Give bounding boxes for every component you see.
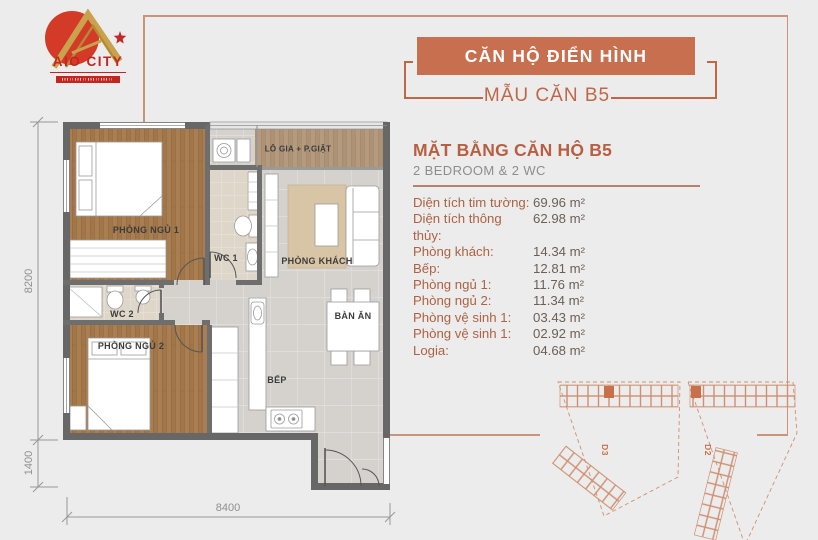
spec-value: 02.92 m² bbox=[533, 326, 585, 342]
bed1 bbox=[76, 142, 162, 216]
stove-icon bbox=[271, 410, 302, 428]
toilet-icon-wc1 bbox=[235, 215, 260, 237]
dimension-left-lower: 1400 bbox=[23, 451, 35, 475]
spec-value: 12.81 m² bbox=[533, 261, 585, 277]
spec-label: Phòng ngủ 2: bbox=[413, 293, 533, 309]
room-label-wc2: WC 2 bbox=[110, 309, 134, 319]
room-label-loggia: LÔ GIA + P.GIẶT bbox=[265, 145, 332, 154]
siteplan-drawing bbox=[552, 382, 797, 540]
spec-value: 69.96 m² bbox=[533, 195, 585, 211]
logo-underline bbox=[50, 72, 126, 74]
room-label-dining: BÀN ĂN bbox=[335, 311, 372, 321]
highlight-unit-d3 bbox=[604, 386, 614, 398]
room-label-bedroom2: PHÒNG NGỦ 2 bbox=[98, 341, 164, 351]
star-icon bbox=[114, 31, 126, 44]
spec-row: Phòng khách:14.34 m² bbox=[413, 244, 705, 260]
spec-row: Bếp:12.81 m² bbox=[413, 261, 705, 277]
sofa bbox=[346, 186, 379, 266]
spec-label: Phòng vệ sinh 1: bbox=[413, 326, 533, 342]
spec-label: Diện tích thông thủy: bbox=[413, 211, 533, 244]
dimension-left-upper: 8200 bbox=[23, 269, 35, 293]
floorplan-drawing bbox=[63, 122, 390, 490]
logo-tagline-bar bbox=[56, 76, 120, 83]
spec-value: 62.98 m² bbox=[533, 211, 585, 244]
spec-list: Diện tích tim tường:69.96 m²Diện tích th… bbox=[413, 195, 705, 359]
loggia-slider bbox=[262, 167, 383, 170]
info-panel: MẶT BẰNG CĂN HỘ B5 2 BEDROOM & 2 WC Diện… bbox=[413, 140, 705, 359]
banner-title: CĂN HỘ ĐIỂN HÌNH bbox=[465, 46, 648, 67]
spec-row: Phòng vệ sinh 1:03.43 m² bbox=[413, 310, 705, 326]
spec-label: Bếp: bbox=[413, 261, 533, 277]
tv-console bbox=[265, 174, 278, 277]
room-label-wc1: WC 1 bbox=[214, 253, 238, 263]
washer-icon bbox=[213, 139, 250, 162]
spec-row: Logia:04.68 m² bbox=[413, 343, 705, 359]
spec-label: Diện tích tim tường: bbox=[413, 195, 533, 211]
dimension-bottom: 8400 bbox=[216, 502, 240, 514]
spec-value: 04.68 m² bbox=[533, 343, 585, 359]
spec-row: Phòng ngủ 2:11.34 m² bbox=[413, 293, 705, 309]
spec-row: Diện tích tim tường:69.96 m² bbox=[413, 195, 705, 211]
spec-label: Phòng ngủ 1: bbox=[413, 277, 533, 293]
room-label-living: PHÒNG KHÁCH bbox=[281, 256, 352, 266]
banner: CĂN HỘ ĐIỂN HÌNH bbox=[417, 37, 695, 75]
spec-label: Logia: bbox=[413, 343, 533, 359]
coffee-table bbox=[315, 204, 338, 246]
info-subtitle: 2 BEDROOM & 2 WC bbox=[413, 163, 705, 178]
spec-row: Diện tích thông thủy:62.98 m² bbox=[413, 211, 705, 244]
spec-value: 03.43 m² bbox=[533, 310, 585, 326]
wardrobe1 bbox=[70, 240, 166, 278]
logo-wordmark: AIO CITY bbox=[50, 54, 126, 69]
spec-value: 11.76 m² bbox=[533, 277, 584, 293]
toilet-icon-wc2 bbox=[107, 286, 123, 309]
banner-bracket bbox=[404, 61, 406, 98]
shower-icon bbox=[68, 287, 102, 317]
sink-icon-wc2 bbox=[135, 286, 151, 304]
spec-label: Phòng vệ sinh 1: bbox=[413, 310, 533, 326]
block-label-d2: D2 bbox=[703, 444, 713, 456]
bed2 bbox=[88, 338, 150, 430]
spec-row: Phòng ngủ 1:11.76 m² bbox=[413, 277, 705, 293]
banner-subtitle: MẪU CĂN B5 bbox=[483, 85, 611, 107]
poster: AIO CITY CĂN HỘ ĐIỂN HÌNH MẪU CĂN B5 MẶT… bbox=[0, 0, 818, 540]
highlight-unit-d2 bbox=[691, 386, 701, 398]
nightstand bbox=[70, 406, 86, 430]
spec-value: 11.34 m² bbox=[533, 293, 584, 309]
spec-value: 14.34 m² bbox=[533, 244, 585, 260]
divider bbox=[413, 185, 700, 187]
spec-label: Phòng khách: bbox=[413, 244, 533, 260]
spec-row: Phòng vệ sinh 1:02.92 m² bbox=[413, 326, 705, 342]
info-title: MẶT BẰNG CĂN HỘ B5 bbox=[413, 140, 705, 161]
room-label-bedroom1: PHÒNG NGỦ 1 bbox=[113, 225, 179, 235]
room-label-kitchen: BẾP bbox=[267, 375, 286, 385]
block-label-d3: D3 bbox=[600, 444, 610, 456]
